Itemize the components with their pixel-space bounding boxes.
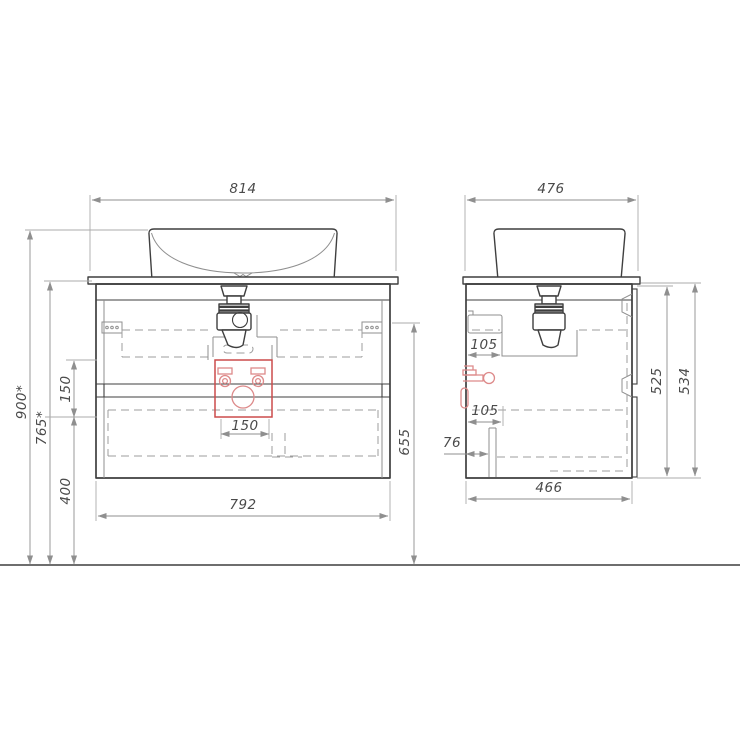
counter-height-label: 765*	[34, 411, 50, 446]
supply-stub-side	[461, 388, 468, 408]
drain-height-label: 400	[58, 477, 74, 504]
cabinet-depth-label: 466	[535, 480, 562, 496]
drawer-slide-right	[362, 322, 382, 333]
siphon-front	[217, 286, 251, 348]
supply-valve-left	[218, 368, 232, 387]
counter-depth-label: 476	[537, 181, 564, 197]
rail-height-label: 655	[397, 428, 413, 455]
pipe-offset-label: 76	[443, 435, 461, 451]
drawer-slide-left	[102, 322, 122, 333]
basin-side	[494, 229, 625, 280]
supply-spacing-label: 150	[58, 375, 74, 402]
front-counter-width-label: 814	[229, 181, 256, 197]
cabinet-height-label: 525	[649, 367, 665, 394]
water-connection-zone	[215, 360, 272, 417]
technical-drawing-canvas: 814 900* 765* 150 400 655 792 150	[0, 0, 750, 750]
countertop-side	[463, 277, 640, 284]
countertop-front	[88, 277, 398, 284]
lower-offset-label: 105	[471, 403, 498, 419]
basin-front	[149, 229, 337, 280]
supply-valve-right	[251, 368, 265, 387]
front-view	[88, 229, 398, 478]
overall-height-label: 900*	[14, 385, 30, 420]
cabinet-width-label: 792	[229, 497, 256, 513]
drawer-box-bottom-hidden	[108, 345, 378, 457]
waste-pipe-side	[489, 428, 496, 477]
overall-side-height-label: 534	[677, 367, 693, 394]
siphon-side	[533, 286, 565, 348]
drawing-page: 814 900* 765* 150 400 655 792 150	[0, 0, 750, 750]
upper-offset-label: 105	[470, 337, 497, 353]
connection-zone-width-label: 150	[231, 418, 258, 434]
side-view	[461, 229, 640, 478]
